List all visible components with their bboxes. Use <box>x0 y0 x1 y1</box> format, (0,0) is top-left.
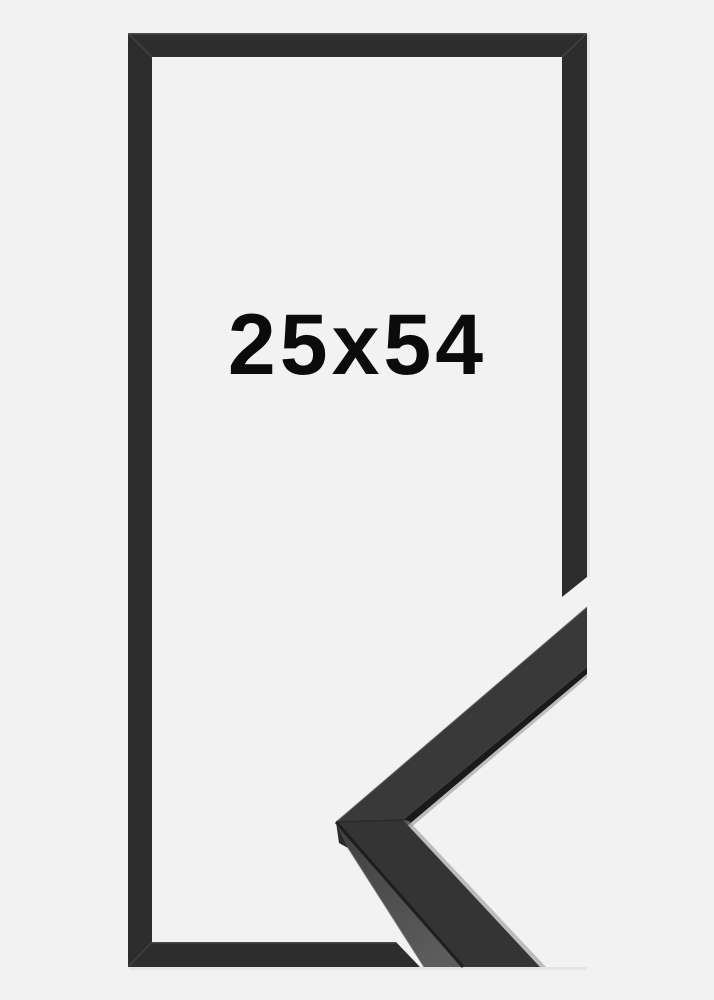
shadow-right <box>587 34 590 577</box>
corner-upper-arm-outer-highlight <box>336 607 587 822</box>
bottom-bar-bevel-highlight <box>152 942 396 943</box>
frame-bottom-bar <box>128 942 420 967</box>
size-label: 25x54 <box>128 302 587 388</box>
top-bar-bevel-highlight <box>128 33 587 35</box>
frame-graphic <box>0 0 714 1000</box>
product-image: 25x54 <box>0 0 714 1000</box>
frame-left-bar <box>128 33 152 967</box>
frame-corner-profile <box>336 607 587 967</box>
frame-top-bar <box>128 33 587 57</box>
shadow-bottom <box>129 967 587 970</box>
